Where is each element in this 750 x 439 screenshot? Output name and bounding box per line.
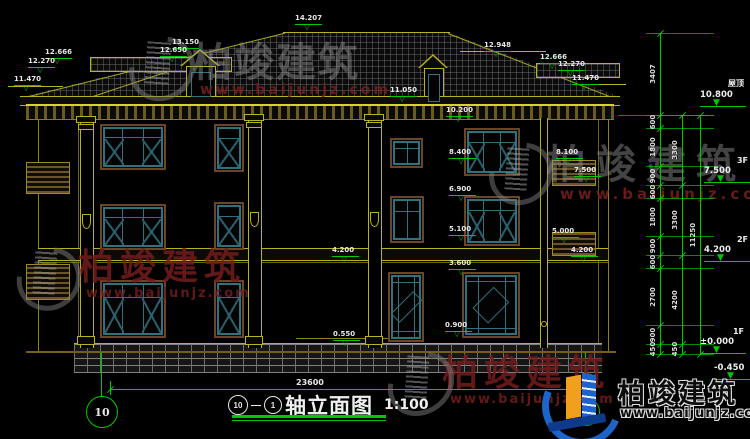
tri-glyph: ▽ [565,158,583,164]
level-marker: 0.900▽ [445,322,472,337]
footer-logo-building-orange [566,375,581,420]
window [100,124,166,170]
tri-glyph: ▽ [455,116,473,122]
title-axis-to-label: 1 [271,401,275,410]
level-marker: 6.900▽ [449,186,476,201]
tri-glyph: ▽ [561,237,579,243]
title-axis-circle-from: 10 [228,395,248,415]
level-text: 14.207 [295,14,322,22]
window-xp [219,298,239,333]
level-marker: 5.000▽ [552,228,579,243]
title-underline-thin [232,420,386,421]
drawing-scale-text: 1:100 [384,397,429,413]
level-text: 8.400 [449,148,471,156]
vl-glyph: ±0.000 [700,337,748,347]
level-marker: 10.200▽ [446,107,473,122]
tri-glyph: ▽ [581,84,599,90]
level-marker: 12.650▽ [160,47,187,62]
nm-glyph: 3F [704,156,750,165]
level-text: 7.500 [574,166,596,174]
overall-dim-text: 23600 [296,378,324,387]
window-xp [105,139,124,165]
tri-glyph: ▽ [341,256,359,262]
chain-line [682,115,683,354]
watermark-url: www.baijunjz.com [200,82,391,98]
wall-left-outer [38,104,39,352]
tri-glyph: ▽ [458,269,476,275]
window-xp [499,212,515,241]
column-capital [78,124,94,130]
level-text: 13.150 [172,38,199,46]
level-text: 12.666 [45,48,72,56]
br-glyph [704,261,750,262]
level-marker: 12.270▽ [28,58,55,73]
tri-glyph: ▽ [458,158,476,164]
column-capital [76,116,96,123]
axis-bubble-10: 10 [86,396,118,428]
level-text: 4.200 [571,246,593,254]
window-xp [219,139,239,167]
right-level-marker: 3F7.500▼ [704,156,750,183]
title-underline-thick [232,415,386,418]
column-shaft [248,114,262,348]
vl-glyph: 4.200 [704,245,750,255]
watermark-brand: 柏竣建筑 [192,30,391,88]
column-capital [246,122,262,128]
tri-glyph: ▽ [399,96,417,102]
window-mv [407,201,408,238]
level-marker: 14.207▽ [295,15,322,30]
window-mh [395,211,419,212]
window-mh [395,148,418,149]
level-text: 0.550 [333,330,355,338]
watermark-top-left: 柏竣建筑 www.baijunjz.com [128,30,391,98]
louver-shutter [26,162,70,194]
window [214,124,244,172]
window-xp [142,139,161,165]
window-mh [393,331,419,332]
chain-dim-text: 2700 [649,278,657,316]
window-mv [407,143,408,163]
level-text: 0.900 [445,321,467,329]
axis-line-10 [101,352,102,397]
br-glyph [704,182,750,183]
title-axis-circle-to: 1 [264,396,282,414]
right-dormer-window [428,74,440,102]
watermark-url: www.baijunjz.com [86,286,251,301]
column-shield-ornament [250,212,259,227]
tri-glyph: ▽ [580,256,598,262]
level-marker: 8.100▽ [556,149,583,164]
column-shaft [368,114,382,348]
level-text: 12.948 [484,41,511,49]
tri-glyph: ▽ [583,176,601,182]
column-shield-ornament [370,212,379,227]
column-capital [364,114,384,121]
cornice-dentils [26,104,614,120]
column-shaft [80,116,94,348]
column-shield-ornament [82,214,91,229]
window-mh [467,281,515,282]
level-marker: 8.400▽ [449,149,476,164]
column-capital [244,114,264,121]
vl-glyph: 7.500 [704,166,750,176]
chain-dim-text: 4200 [671,281,679,319]
watermark-mid-left: 柏竣建筑 www.baijunjz.com [16,238,251,301]
wall-left-inner [78,117,79,346]
tri-glyph: ▽ [493,51,511,57]
level-text: 11.050 [390,86,417,94]
level-text: 8.100 [556,148,578,156]
vl-glyph: 10.800 [700,90,748,100]
level-marker: 7.500▽ [574,167,601,182]
nm-glyph: 1F [700,327,748,336]
chain-line [700,115,701,354]
chain-line [660,33,661,354]
level-text: 12.270 [558,60,585,68]
cad-canvas: 14.207▽13.150▽12.650▽12.666▽12.270▽11.47… [0,0,750,439]
watermark-logo-building [32,249,57,294]
tri-glyph: ▽ [304,24,322,30]
level-marker: 11.470▽ [572,75,599,90]
window [388,272,424,342]
chain-dim-text: 11250 [689,216,697,254]
level-marker: 4.200▽ [332,247,359,262]
level-marker: 12.948▽ [484,42,511,57]
connector-line [646,33,714,34]
tri-glyph: ▽ [54,58,72,64]
window [390,138,423,168]
footer-logo: 柏竣建筑 www.baijunjz.com [540,364,750,436]
level-text: 6.900 [449,185,471,193]
tri-glyph: ▽ [454,331,472,337]
chain-dim-text: 3300 [671,131,679,169]
column-base [245,336,263,345]
level-marker: 0.550▽ [333,331,360,346]
tri-glyph: ▽ [342,340,360,346]
nm-glyph: 屋顶 [700,78,748,89]
level-marker: 3.600▽ [449,260,476,275]
footer-url-text: www.baijunjz.com [620,406,750,421]
level-text: 11.470 [572,74,599,82]
window-mh [393,282,419,283]
chain-dim-text: 600 [649,243,657,281]
window-xp [105,298,124,333]
br-glyph [700,353,746,354]
level-text: 10.200 [446,106,473,114]
axis-bubble-10-label: 10 [94,406,109,419]
level-text: 11.470 [14,75,41,83]
downspout-hub [541,321,547,327]
tri-glyph: ▽ [458,235,476,241]
window-xp [142,298,161,333]
tri-glyph: ▽ [169,56,187,62]
window [390,196,424,243]
watermark-brand: 柏竣建筑 [78,238,251,290]
tri-glyph: ▽ [458,195,476,201]
column-capital [366,122,382,128]
right-level-marker: 1F±0.000▼ [700,327,748,354]
column-base [365,336,383,345]
level-marker: 5.100▽ [449,226,476,241]
level-marker: 11.470▽ [14,76,41,91]
level-text: 5.100 [449,225,471,233]
br-glyph [700,106,746,107]
watermark-logo-building [504,145,529,190]
tri-glyph: ▽ [37,67,55,73]
level-text: 12.650 [160,46,187,54]
level-marker: 4.200▽ [571,247,598,262]
level-text: 4.200 [332,246,354,254]
title-dash: — [251,400,261,411]
chain-dim-text: 3300 [671,201,679,239]
level-text: 5.000 [552,227,574,235]
window-mh [467,328,515,329]
level-marker: 11.050▽ [390,87,417,102]
title-axis-from-label: 10 [234,401,243,410]
column-base [77,336,95,345]
chain-dim-text: 450 [649,330,657,368]
level-text: 3.600 [449,259,471,267]
chain-dim-text: 3407 [649,55,657,93]
chain-dim-text: 450 [671,330,679,368]
tri-glyph: ▽ [23,85,41,91]
nm-glyph: 2F [704,235,750,244]
right-level-marker: 屋顶10.800▼ [700,78,748,107]
right-level-marker: 2F4.200▼ [704,235,750,262]
level-text: 12.270 [28,57,55,65]
right-dormer-cap [420,56,446,68]
